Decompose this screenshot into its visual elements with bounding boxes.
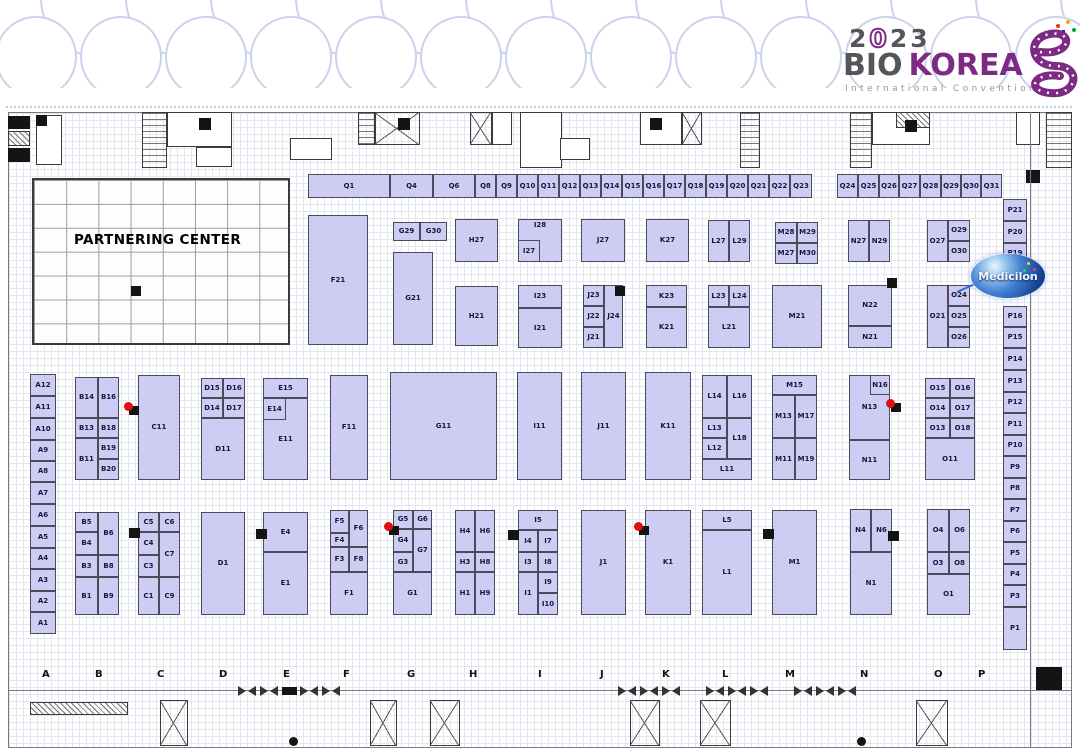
booth-p14: P14 <box>1003 348 1027 370</box>
structure-box <box>492 112 512 145</box>
booth-o1: O1 <box>927 574 970 615</box>
booth-b4: B4 <box>75 532 98 555</box>
booth-p6: P6 <box>1003 521 1027 542</box>
structure-xbox <box>370 700 397 746</box>
booth-i10: I10 <box>538 593 558 615</box>
structure-stairs <box>850 112 872 168</box>
booth-g3: G3 <box>393 552 413 572</box>
column-letter-g: G <box>407 669 415 680</box>
booth-q13: Q13 <box>580 174 601 198</box>
booth-q29: Q29 <box>941 174 961 198</box>
structure-black <box>905 120 917 132</box>
booth-l12: L12 <box>702 438 727 459</box>
booth-b6: B6 <box>98 512 119 555</box>
booth-d11: D11 <box>201 418 245 480</box>
booth-b19: B19 <box>98 438 119 459</box>
booth-m30: M30 <box>797 243 818 264</box>
column-letter-o: O <box>934 669 943 680</box>
door-symbol <box>618 686 636 696</box>
structure-box <box>196 147 232 167</box>
column-letter-a: A <box>42 669 50 680</box>
booth-q12: Q12 <box>559 174 580 198</box>
floorplan-page: 2023 BIOKOREA International Convention P… <box>0 0 1080 748</box>
booth-p9: P9 <box>1003 456 1027 478</box>
booth-l18: L18 <box>727 418 752 459</box>
column-letter-m: M <box>785 669 795 680</box>
booth-g29: G29 <box>393 222 420 241</box>
booth-p8: P8 <box>1003 478 1027 499</box>
booth-h4: H4 <box>455 510 475 552</box>
booth-m1: M1 <box>772 510 817 615</box>
column-marker <box>508 530 519 540</box>
booth-k11: K11 <box>645 372 691 480</box>
column-letter-j: J <box>600 669 604 680</box>
booth-o17: O17 <box>950 398 975 418</box>
booth-h27: H27 <box>455 219 498 262</box>
booth-j23: J23 <box>583 285 604 306</box>
booth-h6: H6 <box>475 510 495 552</box>
booth-o29: O29 <box>948 220 970 241</box>
cloud-scallop <box>80 16 162 98</box>
booth-q10: Q10 <box>517 174 538 198</box>
booth-p5: P5 <box>1003 542 1027 564</box>
booth-g11: G11 <box>390 372 497 480</box>
booth-i1: I1 <box>518 572 538 615</box>
booth-p16: P16 <box>1003 306 1027 327</box>
cloud-scallop <box>590 16 672 98</box>
booth-j22: J22 <box>583 306 604 327</box>
booth-h9: H9 <box>475 572 495 615</box>
column-marker <box>256 529 267 539</box>
booth-p10: P10 <box>1003 435 1027 456</box>
booth-k27: K27 <box>646 219 689 262</box>
booth-f1: F1 <box>330 572 368 615</box>
booth-o15: O15 <box>925 378 950 398</box>
booth-l5: L5 <box>702 510 752 530</box>
booth-a11: A11 <box>30 396 56 418</box>
structure-stairs <box>358 112 375 145</box>
booth-g21: G21 <box>393 252 433 345</box>
booth-o11: O11 <box>925 438 975 480</box>
structure-stairs <box>1046 112 1072 168</box>
structure-vline <box>1030 112 1031 748</box>
booth-o4: O4 <box>927 509 949 552</box>
booth-e15: E15 <box>263 378 308 398</box>
booth-q25: Q25 <box>858 174 879 198</box>
structure-xbox <box>700 700 731 746</box>
booth-c3: C3 <box>138 555 159 577</box>
booth-p20: P20 <box>1003 221 1027 243</box>
structure-box <box>1016 112 1040 145</box>
booth-e14: E14 <box>263 398 286 420</box>
booth-f4: F4 <box>330 533 349 547</box>
booth-g7: G7 <box>413 529 432 572</box>
booth-o25: O25 <box>948 306 970 327</box>
booth-i27: I27 <box>518 240 540 262</box>
booth-o6: O6 <box>949 509 970 552</box>
booth-m17: M17 <box>795 395 817 438</box>
booth-l14: L14 <box>702 375 727 418</box>
booth-n4: N4 <box>850 509 871 552</box>
fire-extinguisher-marker <box>886 399 902 414</box>
column-marker <box>887 278 897 288</box>
structure-black <box>1026 170 1040 183</box>
booth-b1: B1 <box>75 577 98 615</box>
booth-b5: B5 <box>75 512 98 532</box>
booth-j1: J1 <box>581 510 626 615</box>
booth-a1: A1 <box>30 612 56 634</box>
booth-m29: M29 <box>797 222 818 243</box>
booth-h21: H21 <box>455 286 498 346</box>
booth-l11: L11 <box>702 459 752 480</box>
booth-j27: J27 <box>581 219 625 262</box>
fire-extinguisher-marker <box>384 522 400 537</box>
booth-n22: N22 <box>848 285 892 326</box>
booth-o3: O3 <box>927 552 949 574</box>
column-letter-i: I <box>538 669 542 680</box>
booth-n21: N21 <box>848 326 892 348</box>
door-symbol <box>260 686 278 696</box>
booth-j11: J11 <box>581 372 626 480</box>
booth-q8: Q8 <box>475 174 496 198</box>
booth-g6: G6 <box>413 510 432 529</box>
column-letter-b: B <box>95 669 103 680</box>
booth-q27: Q27 <box>899 174 920 198</box>
column-letter-k: K <box>662 669 670 680</box>
structure-xbox <box>630 700 660 746</box>
column-letter-c: C <box>157 669 164 680</box>
booth-f8: F8 <box>349 547 368 572</box>
booth-c6: C6 <box>159 512 180 532</box>
door-symbol <box>750 686 768 696</box>
booth-n27: N27 <box>848 220 869 262</box>
booth-i8: I8 <box>538 552 558 572</box>
structure-xbox <box>682 112 702 145</box>
partnering-center: PARTNERING CENTER <box>32 178 290 345</box>
structure-black <box>650 118 662 130</box>
column-letter-f: F <box>343 669 350 680</box>
door-symbol <box>728 686 746 696</box>
booth-p1: P1 <box>1003 607 1027 650</box>
structure-box <box>560 138 590 160</box>
column-marker <box>888 531 899 541</box>
booth-q21: Q21 <box>748 174 769 198</box>
booth-o18: O18 <box>950 418 975 438</box>
booth-q18: Q18 <box>685 174 706 198</box>
cloud-scallop <box>0 16 77 98</box>
booth-e1: E1 <box>263 552 308 615</box>
booth-q4: Q4 <box>390 174 433 198</box>
column-letter-p: P <box>978 669 985 680</box>
door-symbol <box>838 686 856 696</box>
booth-m11: M11 <box>772 438 795 480</box>
partnering-center-label: PARTNERING CENTER <box>74 232 241 248</box>
door-symbol <box>300 686 318 696</box>
booth-l21: L21 <box>708 307 750 348</box>
confetti-dot <box>1023 269 1026 272</box>
structure-box <box>290 138 332 160</box>
booth-o30: O30 <box>948 241 970 262</box>
booth-k1: K1 <box>645 510 691 615</box>
confetti-dot <box>1027 262 1030 265</box>
structure-black <box>282 687 297 695</box>
booth-a9: A9 <box>30 440 56 461</box>
booth-n11: N11 <box>849 440 890 480</box>
booth-q15: Q15 <box>622 174 643 198</box>
booth-a6: A6 <box>30 504 56 526</box>
booth-k21: K21 <box>646 307 687 348</box>
booth-m21: M21 <box>772 285 822 348</box>
booth-q24: Q24 <box>837 174 858 198</box>
confetti-dot <box>1033 268 1036 271</box>
booth-q20: Q20 <box>727 174 748 198</box>
booth-i23: I23 <box>518 285 562 308</box>
door-symbol <box>794 686 812 696</box>
column-dot <box>289 737 298 746</box>
booth-f6: F6 <box>349 510 368 547</box>
booth-b9: B9 <box>98 577 119 615</box>
booth-p11: P11 <box>1003 413 1027 435</box>
booth-c9: C9 <box>159 577 180 615</box>
booth-a2: A2 <box>30 591 56 612</box>
structure-stairs <box>142 112 167 168</box>
column-letter-d: D <box>219 669 227 680</box>
booth-l23: L23 <box>708 285 729 307</box>
booth-o16: O16 <box>950 378 975 398</box>
cloud-scallop <box>335 16 417 98</box>
structure-black <box>36 115 47 126</box>
booth-b8: B8 <box>98 555 119 577</box>
booth-q11: Q11 <box>538 174 559 198</box>
booth-p21: P21 <box>1003 199 1027 221</box>
booth-q26: Q26 <box>879 174 899 198</box>
booth-c5: C5 <box>138 512 159 532</box>
booth-i7: I7 <box>538 530 558 552</box>
booth-b14: B14 <box>75 377 98 418</box>
booth-d14: D14 <box>201 398 223 418</box>
booth-q23: Q23 <box>790 174 812 198</box>
booth-b13: B13 <box>75 418 98 438</box>
structure-xbox <box>430 700 460 746</box>
booth-m13: M13 <box>772 395 795 438</box>
booth-o13: O13 <box>925 418 950 438</box>
booth-q19: Q19 <box>706 174 727 198</box>
dna-ribbon-icon <box>1018 18 1080 106</box>
booth-j21: J21 <box>583 327 604 348</box>
structure-black <box>199 118 211 130</box>
booth-h1: H1 <box>455 572 475 615</box>
booth-l27: L27 <box>708 220 729 262</box>
door-symbol <box>816 686 834 696</box>
booth-b20: B20 <box>98 459 119 480</box>
booth-i11: I11 <box>517 372 562 480</box>
booth-q22: Q22 <box>769 174 790 198</box>
confetti-dot <box>1030 276 1033 279</box>
booth-a8: A8 <box>30 461 56 482</box>
column-marker <box>615 286 625 296</box>
cloud-scallop <box>165 16 247 98</box>
structure-xbox <box>470 112 492 145</box>
column-marker <box>763 529 774 539</box>
fire-extinguisher-marker <box>124 402 140 417</box>
booth-d1: D1 <box>201 512 245 615</box>
cloud-scallop <box>420 16 502 98</box>
booth-a4: A4 <box>30 548 56 569</box>
booth-d17: D17 <box>223 398 245 418</box>
booth-o8: O8 <box>949 552 970 574</box>
booth-f5: F5 <box>330 510 349 533</box>
booth-a12: A12 <box>30 374 56 396</box>
column-marker <box>131 286 141 296</box>
fire-extinguisher-marker <box>634 522 650 537</box>
structure-xbox <box>916 700 948 746</box>
booth-f11: F11 <box>330 375 368 480</box>
booth-i9: I9 <box>538 572 558 593</box>
booth-b16: B16 <box>98 377 119 418</box>
booth-q9: Q9 <box>496 174 517 198</box>
booth-q30: Q30 <box>961 174 981 198</box>
biokorea-logo: 2023 BIOKOREA International Convention <box>843 26 1080 110</box>
booth-c1: C1 <box>138 577 159 615</box>
booth-e4: E4 <box>263 512 308 552</box>
booth-a3: A3 <box>30 569 56 591</box>
booth-p3: P3 <box>1003 585 1027 607</box>
door-symbol <box>662 686 680 696</box>
booth-o26: O26 <box>948 327 970 348</box>
booth-l16: L16 <box>727 375 752 418</box>
booth-d15: D15 <box>201 378 223 398</box>
booth-m15: M15 <box>772 375 817 395</box>
booth-m27: M27 <box>775 243 797 264</box>
booth-m28: M28 <box>775 222 797 243</box>
booth-q6: Q6 <box>433 174 475 198</box>
structure-black <box>8 148 30 162</box>
booth-l1: L1 <box>702 530 752 615</box>
booth-h8: H8 <box>475 552 495 572</box>
medicilon-label: Medicilon <box>978 270 1038 283</box>
booth-p7: P7 <box>1003 499 1027 521</box>
medicilon-logo: Medicilon <box>971 254 1045 298</box>
booth-i5: I5 <box>518 510 558 530</box>
booth-q16: Q16 <box>643 174 664 198</box>
booth-g30: G30 <box>420 222 447 241</box>
structure-black <box>1036 667 1062 690</box>
booth-f3: F3 <box>330 547 349 572</box>
booth-q1: Q1 <box>308 174 390 198</box>
door-symbol <box>640 686 658 696</box>
booth-g1: G1 <box>393 572 432 615</box>
booth-c7: C7 <box>159 532 180 577</box>
column-letter-h: H <box>469 669 477 680</box>
column-letter-n: N <box>860 669 868 680</box>
booth-b3: B3 <box>75 555 98 577</box>
cloud-scallop <box>505 16 587 98</box>
structure-hatch <box>8 131 30 146</box>
booth-h3: H3 <box>455 552 475 572</box>
booth-p15: P15 <box>1003 327 1027 348</box>
booth-n1: N1 <box>850 552 892 615</box>
booth-p4: P4 <box>1003 564 1027 585</box>
booth-q17: Q17 <box>664 174 685 198</box>
cloud-scallop <box>760 16 842 98</box>
booth-n29: N29 <box>869 220 890 262</box>
booth-q14: Q14 <box>601 174 622 198</box>
booth-l24: L24 <box>729 285 750 307</box>
door-symbol <box>238 686 256 696</box>
booth-l13: L13 <box>702 418 727 438</box>
booth-i3: I3 <box>518 552 538 572</box>
booth-p12: P12 <box>1003 392 1027 413</box>
door-symbol <box>322 686 340 696</box>
booth-f21: F21 <box>308 215 368 345</box>
structure-xbox <box>160 700 188 746</box>
column-dot <box>857 737 866 746</box>
booth-m19: M19 <box>795 438 817 480</box>
booth-b11: B11 <box>75 438 98 480</box>
booth-a7: A7 <box>30 482 56 504</box>
structure-hatch <box>30 702 128 715</box>
booth-k23: K23 <box>646 285 687 307</box>
structure-box <box>520 112 562 168</box>
column-marker <box>129 528 140 538</box>
booth-d16: D16 <box>223 378 245 398</box>
booth-c4: C4 <box>138 532 159 555</box>
booth-l29: L29 <box>729 220 750 262</box>
structure-black <box>8 116 30 129</box>
structure-stairs <box>740 112 760 168</box>
booth-p13: P13 <box>1003 370 1027 392</box>
door-symbol <box>706 686 724 696</box>
cloud-scallop <box>250 16 332 98</box>
booth-n16: N16 <box>870 375 890 395</box>
booth-q28: Q28 <box>920 174 941 198</box>
column-letter-l: L <box>722 669 728 680</box>
booth-q31: Q31 <box>981 174 1002 198</box>
booth-o14: O14 <box>925 398 950 418</box>
booth-a10: A10 <box>30 418 56 440</box>
structure-hline <box>8 690 1072 691</box>
booth-b18: B18 <box>98 418 119 438</box>
structure-black <box>398 118 410 130</box>
column-letter-e: E <box>283 669 290 680</box>
booth-o27: O27 <box>927 220 948 262</box>
cloud-scallop <box>675 16 757 98</box>
booth-i21: I21 <box>518 308 562 348</box>
booth-i4: I4 <box>518 530 538 552</box>
booth-o21: O21 <box>927 285 948 348</box>
booth-a5: A5 <box>30 526 56 548</box>
booth-c11: C11 <box>138 375 180 480</box>
